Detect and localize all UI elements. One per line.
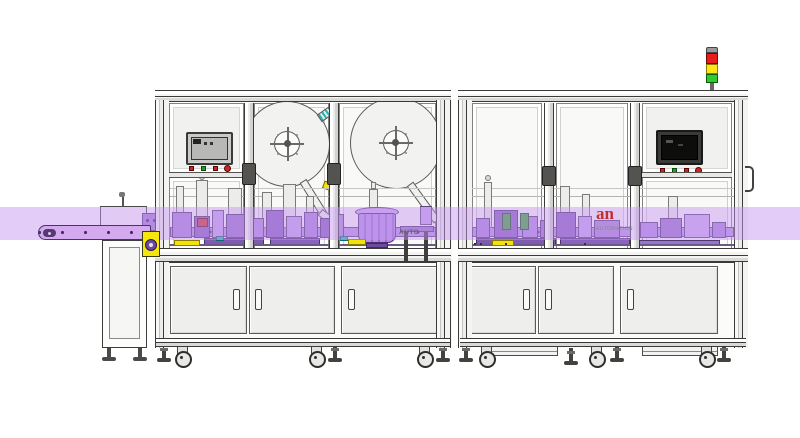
door-hinge bbox=[327, 163, 341, 185]
bowl-tower bbox=[369, 189, 378, 208]
reel-axle bbox=[392, 139, 399, 146]
caster-wheel bbox=[588, 346, 604, 367]
caster-wheel bbox=[478, 346, 494, 367]
door-hinge bbox=[242, 163, 256, 185]
pedestal-foot-plate bbox=[133, 357, 147, 361]
hub-tick bbox=[277, 153, 279, 155]
hmi-screen bbox=[661, 135, 698, 160]
hub-tick bbox=[386, 152, 388, 154]
cabinet-door bbox=[341, 266, 443, 334]
door-hinge bbox=[628, 166, 642, 186]
hub-tick bbox=[386, 133, 388, 135]
door-handle[interactable] bbox=[255, 289, 262, 310]
hub-tick bbox=[405, 152, 407, 154]
beam-line bbox=[170, 188, 436, 189]
floor-dot bbox=[584, 243, 586, 245]
screen-glyph bbox=[193, 139, 201, 144]
brand-logo-text: an bbox=[596, 205, 614, 222]
hub-tick bbox=[296, 153, 298, 155]
pedestal-foot-plate bbox=[102, 357, 116, 361]
stop-button[interactable] bbox=[189, 166, 194, 171]
brand-logo-caption: AUTOMATION bbox=[596, 227, 633, 232]
leveling-foot bbox=[328, 345, 342, 365]
screen-dot bbox=[204, 142, 207, 145]
caster-wheel bbox=[174, 346, 190, 367]
caster-wheel bbox=[308, 346, 324, 367]
door-hinge bbox=[542, 166, 556, 186]
leveling-foot bbox=[436, 345, 450, 365]
panel-divider bbox=[169, 172, 244, 178]
beam-line bbox=[472, 188, 734, 189]
floor-dot bbox=[474, 243, 476, 245]
caster-wheel bbox=[698, 346, 714, 367]
drive-gear-hub bbox=[149, 243, 153, 247]
green-light bbox=[706, 74, 718, 83]
mid-rail bbox=[458, 248, 748, 262]
sensor-antenna-knob bbox=[119, 192, 125, 197]
emergency-stop-button[interactable] bbox=[224, 165, 231, 172]
floor-line bbox=[170, 244, 436, 246]
door-handle[interactable] bbox=[545, 289, 552, 310]
red-light bbox=[706, 53, 718, 64]
door-handle[interactable] bbox=[233, 289, 240, 310]
cabinet-door bbox=[620, 266, 718, 334]
start-button[interactable] bbox=[201, 166, 206, 171]
yellow-guard-strip bbox=[492, 240, 514, 246]
leveling-foot bbox=[459, 345, 473, 365]
screen-glyph bbox=[678, 144, 683, 146]
base-rail bbox=[156, 338, 450, 347]
belt-roller-pin bbox=[48, 232, 51, 235]
yellow-light bbox=[706, 64, 718, 74]
top-rail bbox=[458, 90, 748, 102]
screen-dot bbox=[210, 142, 213, 145]
reset-button[interactable] bbox=[213, 166, 218, 171]
caster-wheel bbox=[416, 346, 432, 367]
support-subframe bbox=[486, 346, 558, 356]
bowl-tower-tip bbox=[371, 182, 376, 189]
hub-tick bbox=[296, 134, 298, 136]
door-handle[interactable] bbox=[627, 289, 634, 310]
door-handle[interactable] bbox=[348, 289, 355, 310]
leveling-foot bbox=[610, 345, 624, 365]
reel-axle bbox=[284, 140, 291, 147]
yellow-guard-strip bbox=[174, 240, 200, 246]
tower-knob bbox=[485, 175, 491, 181]
screen-glyph bbox=[666, 140, 673, 143]
door-handle[interactable] bbox=[523, 289, 530, 310]
beam-line bbox=[170, 196, 436, 197]
conveyor-pedestal-panel bbox=[109, 247, 140, 339]
floor-dot bbox=[480, 243, 482, 245]
floor-dot bbox=[505, 243, 507, 245]
base-rail bbox=[460, 338, 746, 347]
leveling-foot bbox=[564, 348, 578, 368]
top-rail bbox=[155, 90, 451, 102]
leveling-foot bbox=[157, 345, 171, 365]
machine-line-illustration: AUTO an AUTOMATION bbox=[0, 0, 800, 438]
panel-divider bbox=[642, 172, 732, 178]
hub-tick bbox=[277, 134, 279, 136]
leveling-foot bbox=[717, 345, 731, 365]
hub-tick bbox=[405, 133, 407, 135]
side-handle[interactable] bbox=[745, 166, 754, 192]
beam-line bbox=[472, 196, 734, 197]
machine-watermark-text: AUTO bbox=[399, 230, 419, 237]
